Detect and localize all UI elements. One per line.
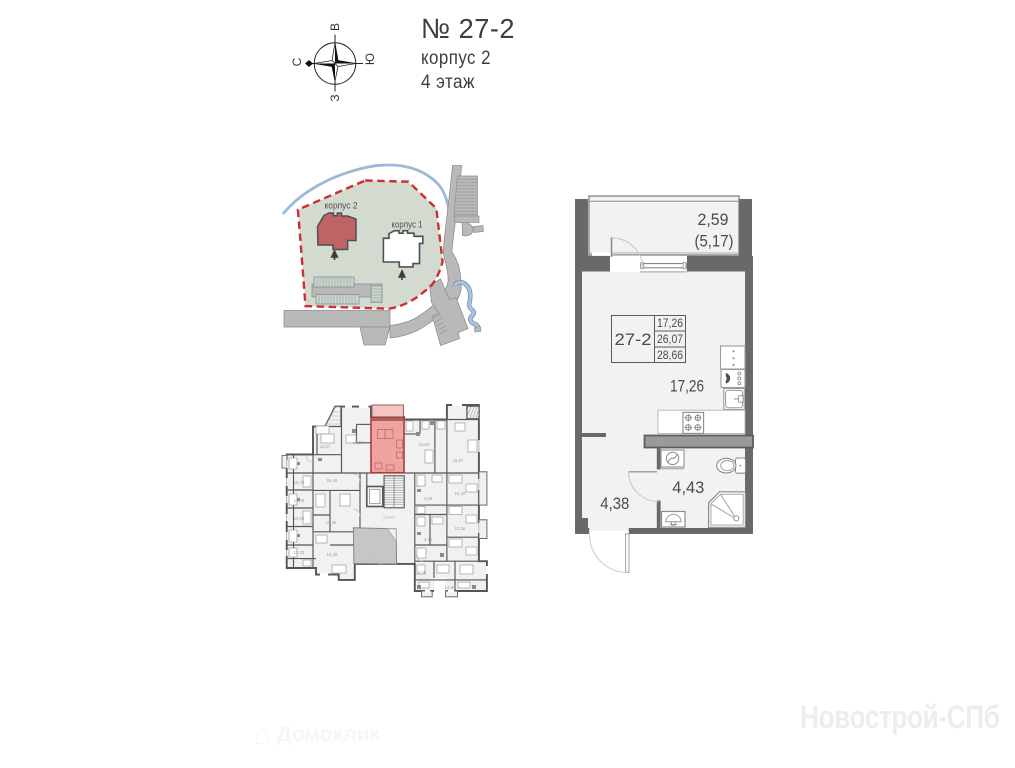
svg-text:4,43: 4,43	[672, 479, 704, 497]
svg-text:4,38: 4,38	[424, 537, 433, 542]
svg-text:11,08: 11,08	[294, 498, 305, 503]
svg-text:15,75: 15,75	[294, 480, 305, 485]
svg-text:С: С	[290, 57, 304, 66]
svg-text:4,38: 4,38	[600, 495, 629, 513]
svg-text:26,07: 26,07	[657, 332, 683, 346]
svg-text:10,45: 10,45	[326, 520, 337, 525]
svg-text:11,57: 11,57	[320, 444, 331, 449]
svg-text:4,36: 4,36	[418, 570, 427, 575]
svg-text:2,59: 2,59	[698, 211, 729, 229]
svg-text:корпус 2: корпус 2	[325, 201, 358, 211]
svg-text:З: З	[328, 94, 342, 101]
svg-text:В: В	[328, 23, 342, 31]
svg-text:15,45: 15,45	[327, 478, 338, 483]
svg-text:12,23: 12,23	[294, 550, 305, 555]
svg-text:Ю: Ю	[363, 53, 377, 65]
svg-text:17,26: 17,26	[657, 316, 683, 330]
svg-text:корпус 1: корпус 1	[392, 220, 423, 230]
svg-text:(5,17): (5,17)	[695, 233, 734, 251]
svg-text:13,36: 13,36	[455, 526, 466, 531]
svg-text:28,66: 28,66	[657, 348, 683, 362]
svg-text:СОЮ: СОЮ	[383, 515, 395, 520]
svg-text:4,38: 4,38	[424, 496, 433, 501]
svg-text:15,38: 15,38	[455, 491, 466, 496]
svg-text:17,26: 17,26	[670, 378, 704, 396]
svg-text:16,55: 16,55	[353, 440, 364, 445]
svg-text:14,38: 14,38	[327, 552, 338, 557]
svg-text:10,03: 10,03	[419, 442, 430, 447]
svg-text:27-2: 27-2	[615, 330, 652, 349]
svg-text:15,57: 15,57	[453, 458, 464, 463]
svg-text:13,08: 13,08	[294, 516, 305, 521]
svg-text:14,86: 14,86	[445, 585, 456, 590]
